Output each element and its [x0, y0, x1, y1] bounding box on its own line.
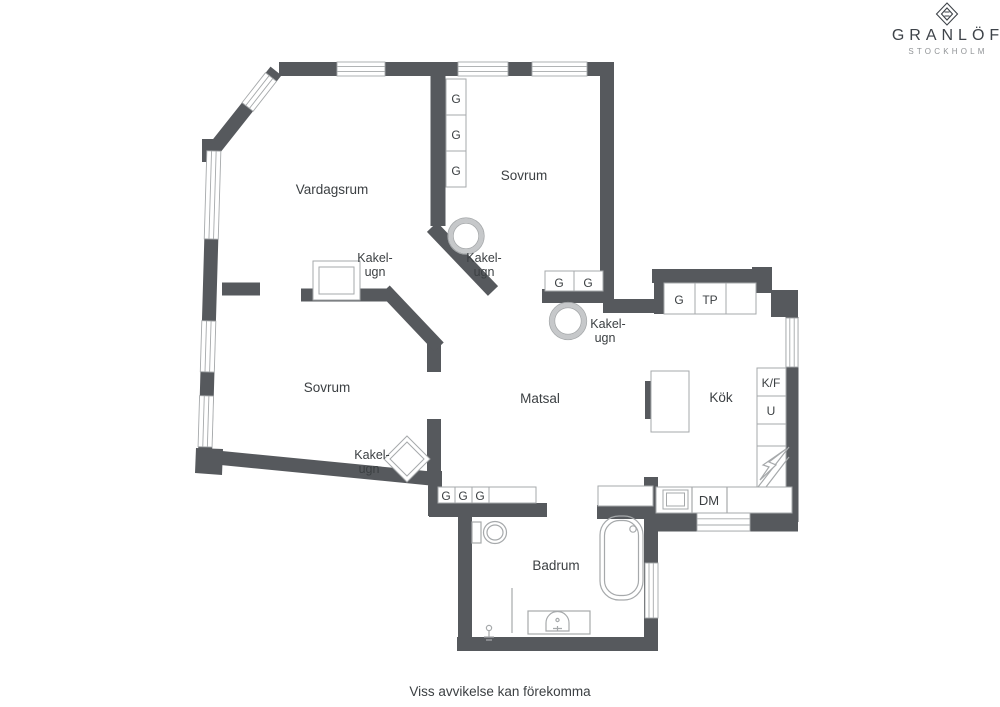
brand-logo: GRANLÖF STOCKHOLM: [892, 3, 1000, 56]
stove-label-line2: ugn: [365, 265, 386, 279]
stove-label-line1: Kakel-: [590, 317, 625, 331]
exterior-walls: [201, 62, 770, 651]
brand-diamond-icon: [937, 3, 958, 25]
bathtub-icon: [600, 516, 643, 600]
wardrobe-label: G: [554, 276, 563, 290]
room-label-bedroom-left: Sovrum: [304, 380, 351, 395]
corner-block-bottom-left: [195, 448, 223, 475]
stove-label-line1: Kakel-: [357, 251, 392, 265]
stove-label-line2: ugn: [474, 265, 495, 279]
window-top-3: [532, 62, 587, 76]
counter-left-piece: [598, 486, 653, 506]
tiled-stove-living-inner: [319, 267, 354, 294]
tiled-stove-dining: [552, 305, 584, 337]
sink-vanity-icon: [528, 611, 590, 634]
stove-label-dining: Kakel- ugn: [590, 317, 625, 345]
window-top-1: [337, 62, 385, 76]
toilet-icon: [472, 522, 507, 544]
wardrobe-label: G: [451, 164, 460, 178]
stove-label-line2: ugn: [595, 331, 616, 345]
alcove-cell: [726, 283, 756, 314]
kitchen-island: [651, 371, 689, 432]
plan-labels: Vardagsrum Sovrum Sovrum Matsal Kök Badr…: [296, 92, 781, 573]
brand-city: STOCKHOLM: [908, 47, 987, 56]
window-chamfer: [242, 73, 276, 112]
counter-cell: [757, 424, 786, 446]
tiled-stove-bedroom-top: [451, 221, 482, 252]
window-kitchen-right: [786, 318, 798, 367]
fixtures: [472, 447, 789, 640]
room-label-dining: Matsal: [520, 391, 560, 406]
wardrobe-label: G: [475, 489, 484, 503]
wardrobe-label: G: [583, 276, 592, 290]
stove-label-line2: ugn: [359, 462, 380, 476]
oven-label: U: [767, 404, 776, 418]
stove-label-line1: Kakel-: [466, 251, 501, 265]
stove-label-living: Kakel- ugn: [357, 251, 392, 279]
kitchen-step-block-2: [771, 290, 798, 317]
dishwasher-label: DM: [699, 493, 719, 508]
room-label-kitchen: Kök: [709, 390, 733, 405]
fridge-freezer-label: K/F: [762, 376, 781, 390]
sink-inner: [667, 493, 685, 506]
stove-label-line1: Kakel-: [354, 448, 389, 462]
window-top-2: [458, 62, 508, 76]
wardrobe-label: G: [451, 128, 460, 142]
room-label-living: Vardagsrum: [296, 182, 369, 197]
windows: [198, 62, 798, 618]
wardrobe-label: G: [674, 293, 683, 307]
wardrobe-label: G: [458, 489, 467, 503]
tp-label: TP: [702, 293, 717, 307]
floor-plan-drawing: Vardagsrum Sovrum Sovrum Matsal Kök Badr…: [0, 0, 1000, 707]
window-kitchen-bottom: [697, 513, 750, 531]
room-label-bedroom-top: Sovrum: [501, 168, 548, 183]
window-bathroom-right: [645, 563, 658, 618]
disclaimer-text: Viss avvikelse kan förekomma: [409, 684, 591, 699]
room-label-bathroom: Badrum: [532, 558, 579, 573]
closet-box: [489, 487, 536, 503]
wardrobe-label: G: [441, 489, 450, 503]
walls: [201, 62, 798, 651]
floorplan-page: Vardagsrum Sovrum Sovrum Matsal Kök Badr…: [0, 0, 1000, 707]
wardrobe-label: G: [451, 92, 460, 106]
brand-name: GRANLÖF: [892, 26, 1000, 44]
